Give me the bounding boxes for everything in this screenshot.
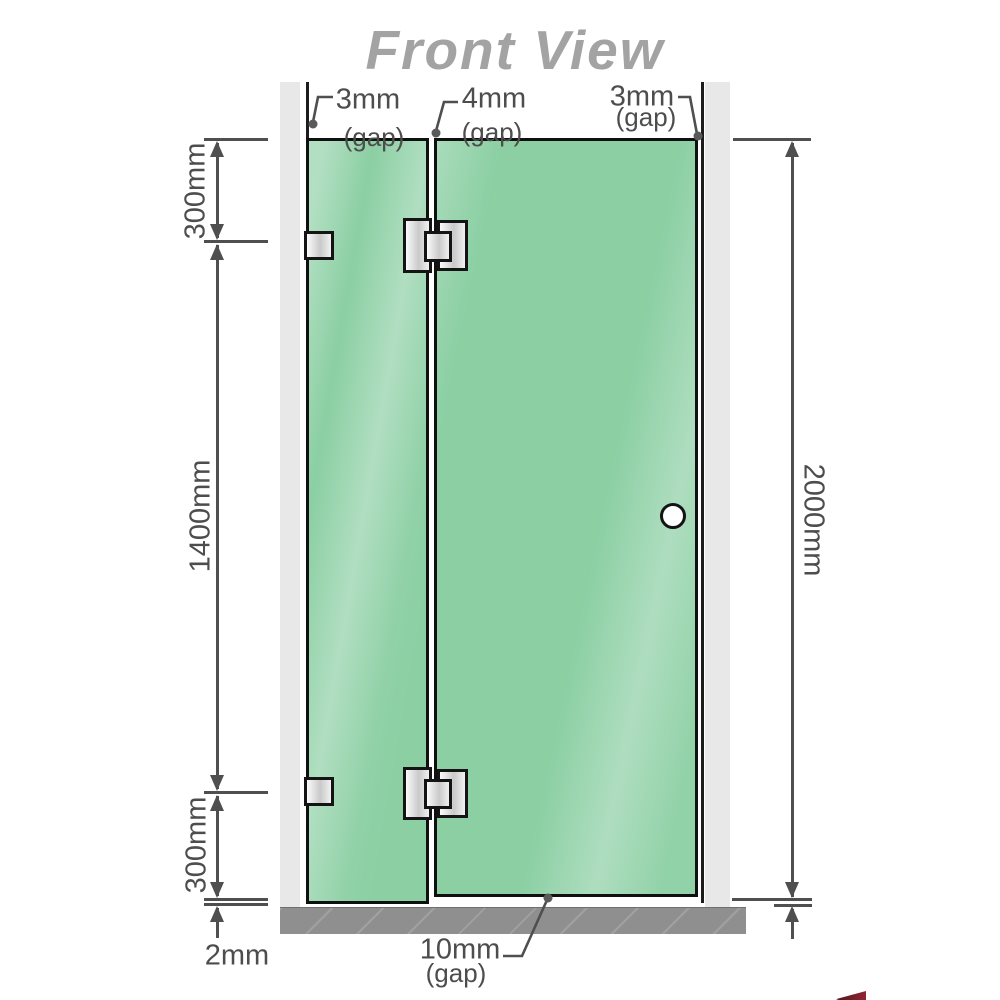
hinge-top-knuckle bbox=[424, 231, 452, 262]
dim-left-bottom-label: 300mm bbox=[183, 797, 212, 894]
page-title: Front View bbox=[30, 18, 1000, 82]
arrow-down-icon bbox=[785, 882, 799, 898]
arrow-up-icon bbox=[210, 244, 224, 260]
dim-right-tick-floor-a bbox=[732, 898, 812, 901]
floor-bar bbox=[280, 907, 746, 934]
dim-right-tick-top bbox=[733, 138, 811, 141]
leader-gap-middle bbox=[436, 102, 458, 131]
dim-left-middle-label: 1400mm bbox=[187, 460, 216, 573]
leader-dot-icon bbox=[309, 120, 318, 129]
dim-2mm-label: 2mm bbox=[205, 942, 269, 971]
hinge-bottom-knuckle bbox=[424, 779, 452, 809]
wall-line-left bbox=[306, 82, 309, 142]
gap-middle-note: (gap) bbox=[462, 119, 523, 145]
wall-bracket-bottom bbox=[304, 777, 334, 806]
gap-bottom-note: (gap) bbox=[426, 960, 487, 986]
arrow-up-icon bbox=[785, 906, 799, 922]
door-handle bbox=[660, 503, 686, 529]
gap-left-value: 3mm bbox=[336, 86, 400, 115]
dim-left-tick-lower bbox=[204, 791, 268, 794]
leader-gap-right bbox=[678, 97, 697, 134]
leader-dot-icon bbox=[432, 129, 441, 138]
arrow-up-icon bbox=[210, 141, 224, 157]
dim-right-line bbox=[791, 143, 794, 897]
dim-right-label: 2000mm bbox=[799, 464, 828, 577]
wall-channel-right bbox=[705, 82, 730, 907]
gap-left-note: (gap) bbox=[344, 124, 405, 150]
arrow-down-icon bbox=[210, 775, 224, 791]
dim-left-top-label: 300mm bbox=[182, 143, 211, 240]
dim-left-bottom-line bbox=[216, 796, 219, 896]
arrow-down-icon bbox=[210, 224, 224, 240]
gap-right-note: (gap) bbox=[616, 104, 677, 130]
arrow-up-icon bbox=[785, 141, 799, 157]
gap-middle-value: 4mm bbox=[462, 85, 526, 114]
logo-fragment bbox=[836, 991, 866, 1000]
leader-gap-left bbox=[313, 97, 333, 122]
front-view-diagram: Front View 300mm 1400mm 300mm 2mm bbox=[0, 0, 1000, 1000]
wall-channel-left bbox=[280, 82, 300, 907]
arrow-up-icon bbox=[210, 906, 224, 922]
dim-left-tick-upper bbox=[204, 240, 268, 243]
wall-bracket-top bbox=[304, 231, 334, 260]
glass-panel-door bbox=[434, 138, 698, 897]
dim-left-tick-floor-a bbox=[204, 898, 268, 901]
wall-line-right bbox=[701, 82, 704, 903]
